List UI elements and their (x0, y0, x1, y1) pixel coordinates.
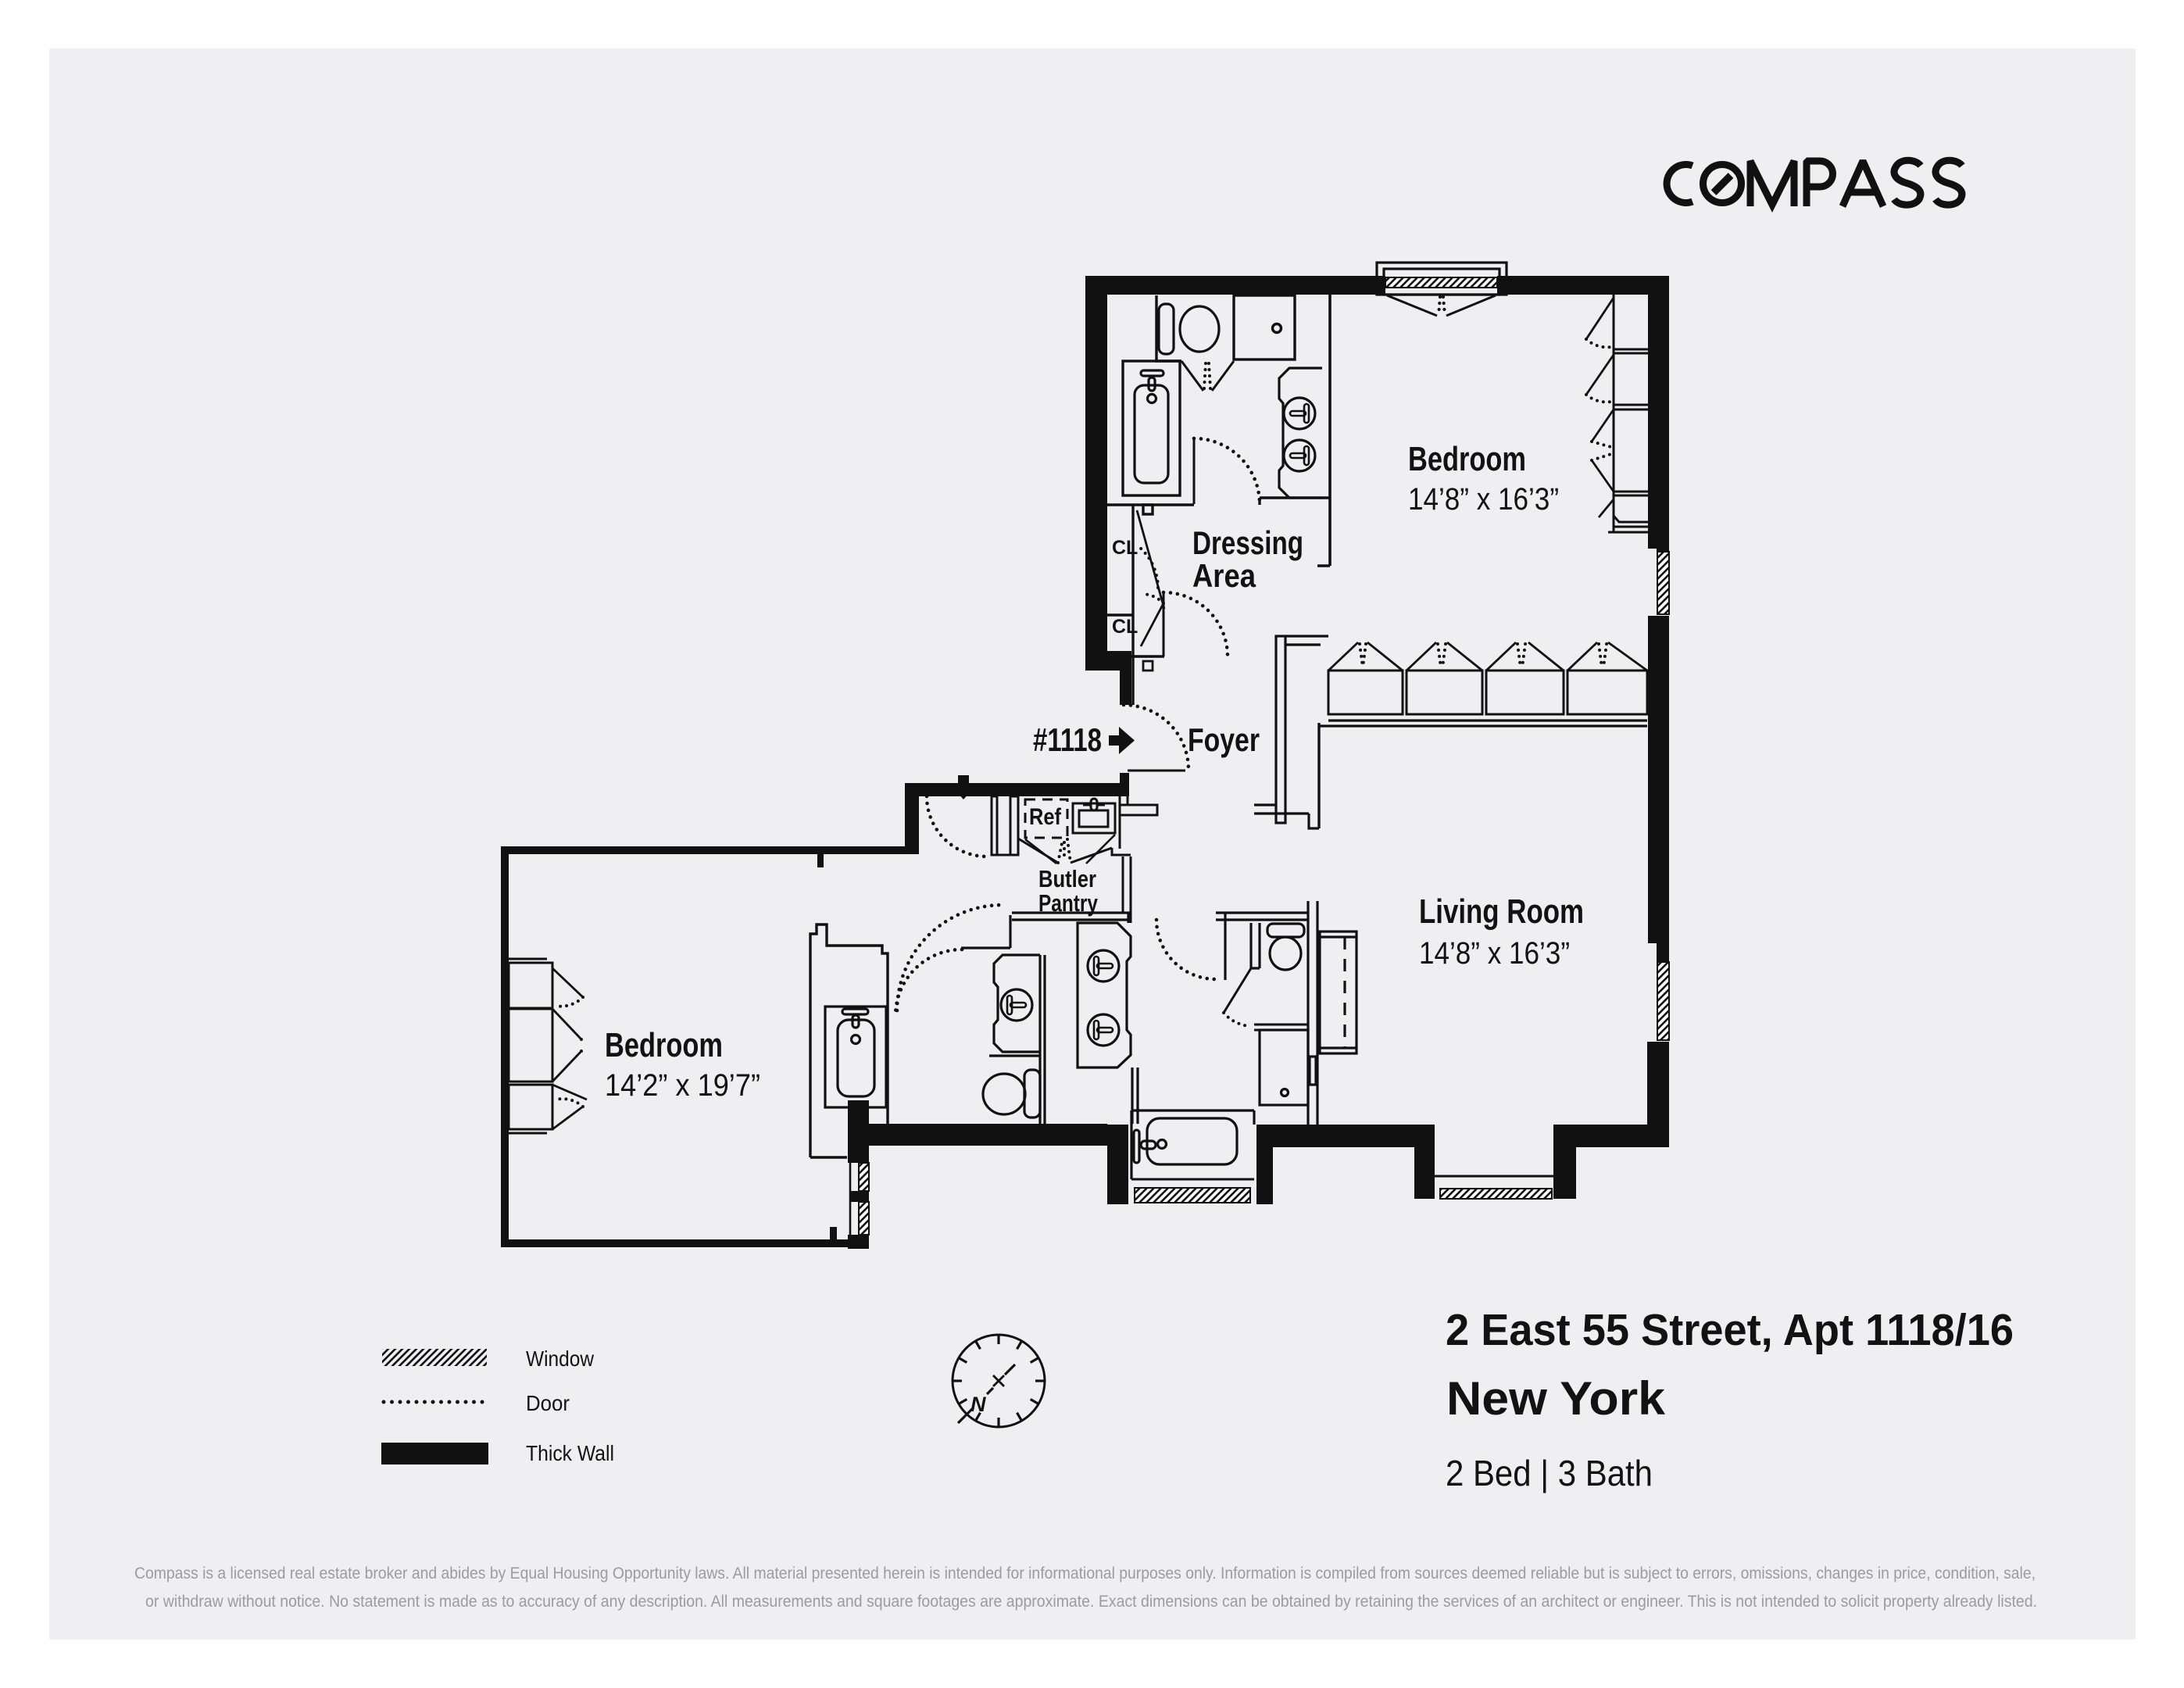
svg-text:Butler: Butler (1038, 865, 1096, 892)
svg-text:New York: New York (1446, 1372, 1666, 1425)
svg-text:CL: CL (1112, 616, 1138, 638)
svg-text:14’2” x 19’7”: 14’2” x 19’7” (605, 1068, 760, 1103)
svg-text:Thick Wall: Thick Wall (526, 1441, 614, 1465)
svg-text:2 East 55 Street, Apt 1118/16: 2 East 55 Street, Apt 1118/16 (1446, 1305, 2014, 1355)
svg-text:Foyer: Foyer (1188, 721, 1260, 758)
svg-text:CL: CL (1112, 537, 1138, 559)
svg-text:N: N (970, 1393, 986, 1416)
svg-text:Window: Window (526, 1346, 595, 1371)
svg-text:or withdraw without notice. No: or withdraw without notice. No statement… (145, 1593, 2037, 1611)
svg-text:Pantry: Pantry (1038, 889, 1099, 917)
svg-text:Ref: Ref (1029, 804, 1062, 830)
svg-text:Bedroom: Bedroom (1408, 440, 1526, 478)
svg-text:#1118: #1118 (1033, 721, 1102, 758)
svg-text:Door: Door (526, 1391, 570, 1415)
svg-text:Bedroom: Bedroom (605, 1026, 723, 1064)
svg-text:Dressing: Dressing (1192, 524, 1303, 561)
svg-text:Area: Area (1192, 557, 1256, 594)
svg-text:14’8” x 16’3”: 14’8” x 16’3” (1419, 936, 1570, 971)
svg-text:2 Bed | 3 Bath: 2 Bed | 3 Bath (1446, 1453, 1653, 1493)
svg-text:14’8” x 16’3”: 14’8” x 16’3” (1408, 482, 1559, 517)
svg-text:Living Room: Living Room (1419, 892, 1584, 931)
svg-text:Compass is a licensed real est: Compass is a licensed real estate broker… (134, 1565, 2036, 1582)
